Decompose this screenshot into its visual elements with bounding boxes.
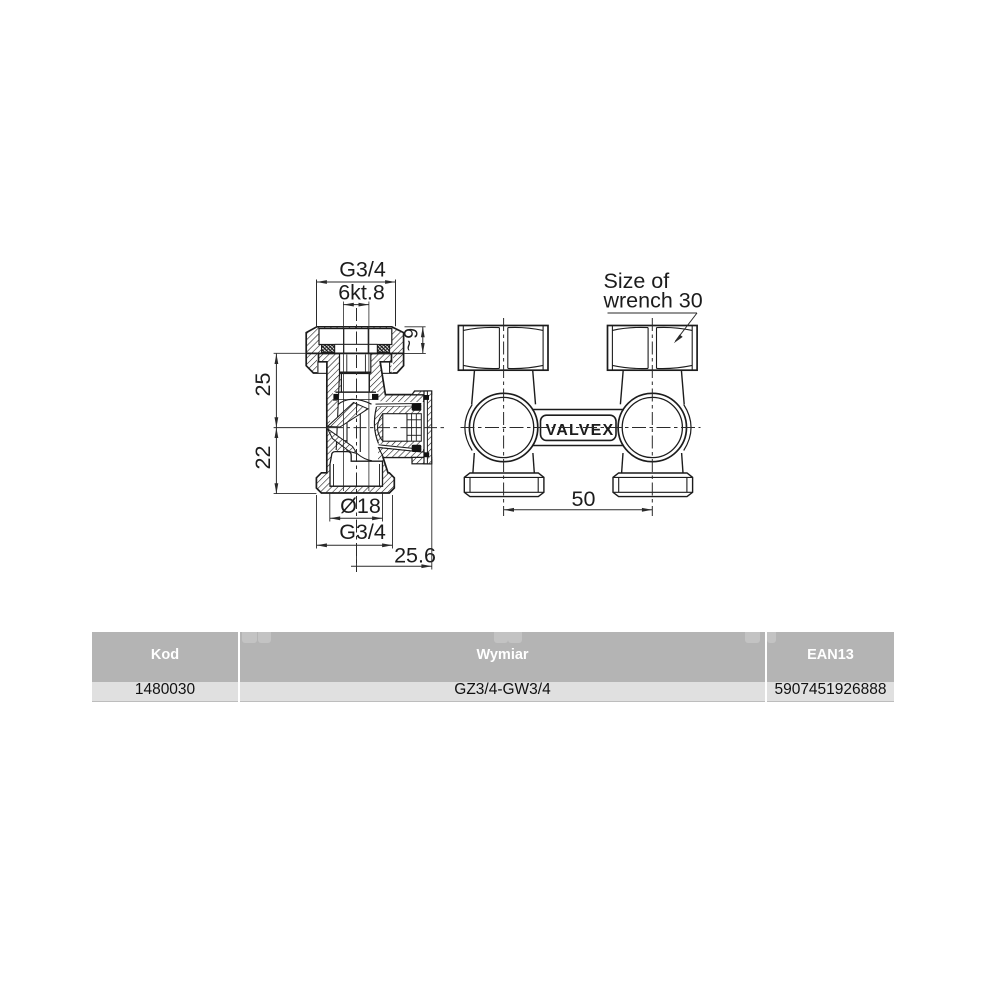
svg-text:9: 9	[401, 328, 423, 339]
svg-text:~: ~	[399, 340, 421, 351]
svg-text:22: 22	[251, 446, 275, 470]
svg-text:6kt.8: 6kt.8	[338, 281, 385, 305]
svg-text:VALVEX: VALVEX	[546, 422, 615, 439]
svg-text:25: 25	[251, 373, 275, 397]
svg-text:G3/4: G3/4	[339, 520, 386, 544]
svg-text:50: 50	[572, 487, 596, 511]
svg-text:wrench 30: wrench 30	[603, 288, 703, 312]
svg-text:Ø18: Ø18	[340, 494, 381, 518]
svg-text:25.6: 25.6	[394, 544, 436, 568]
svg-text:G3/4: G3/4	[339, 258, 386, 282]
